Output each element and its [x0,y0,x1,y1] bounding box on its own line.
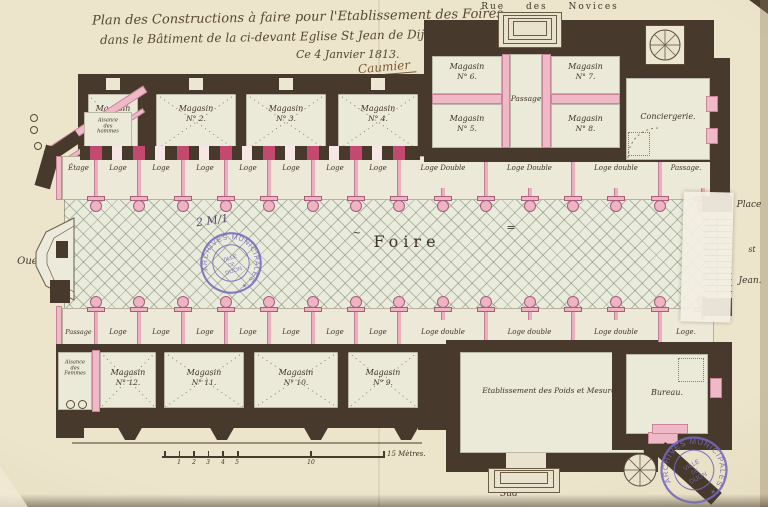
scale-tick-label: 4 [218,459,228,466]
loge-label: Loge [314,328,356,336]
latrine-seat [66,400,75,409]
scale-tick-label: 1 [174,459,184,466]
magasin-7-label: MagasinN° 7. [551,62,620,82]
new-wall [432,94,502,104]
scale-tick [179,451,181,458]
scale-tick [208,451,210,458]
loge-label: Loge [270,164,312,172]
scale-tick [222,451,224,458]
spiral-stair-icon [648,28,682,62]
fold-corner [0,466,28,507]
door-jamb [220,146,232,160]
ledge-line [72,442,422,444]
loge-label: Loge [357,328,399,336]
step [513,21,547,36]
bottom-row-first-label: Passage [62,328,95,336]
scale-end-label: 15 Mètres. [387,450,437,458]
door-jamb [307,146,319,160]
paper-patch [680,191,733,322]
aisance-femmes-label: AisancedesFemmes [61,360,90,377]
door-opening [199,146,209,160]
svg-text:DIJON: DIJON [225,266,243,277]
door [706,128,718,144]
loge-label: Loge [357,164,399,172]
loge-label: Loge [270,328,312,336]
wall-segment [56,426,84,438]
foire-hall [64,196,718,314]
door-gap [189,78,203,90]
door-gap [371,78,385,90]
door-gap [106,78,120,90]
latrine-seat [30,114,38,122]
place-st-jean-line1: Place [731,200,767,210]
street-label-north: Rue des Novices [455,2,645,12]
loge-label: Loge [184,164,226,172]
buttress [303,426,329,440]
door-opening [112,146,122,160]
door-opening [372,146,382,160]
magasin-5-label: MagasinN° 5. [432,114,502,134]
door-opening [329,146,339,160]
door-opening [285,146,295,160]
magasin-10-label: MagasinN° 10. [254,368,338,388]
door-opening [155,146,165,160]
scale-tick [310,451,312,458]
magasin-8-label: MagasinN° 8. [551,114,620,134]
door [706,96,718,112]
loge-double-label: Loge double [574,328,658,336]
magasin-6-label: MagasinN° 6. [432,62,502,82]
loge-label: Loge [140,328,182,336]
door-gap [279,78,293,90]
loge-double-label: Loge double [574,164,658,172]
bottom-edge-shadow [0,494,768,507]
new-wall [92,350,100,412]
plan-title-line2: dans le Bâtiment de la ci-devant Eglise … [100,27,443,47]
loge-label: Loge [227,164,269,172]
scale-bar-line [162,456,384,458]
top-loge-row [62,156,714,200]
loge-label: Loge [97,328,139,336]
place-st-jean-line2: st [742,245,762,254]
magasin-9-label: MagasinN° 9. [348,368,418,388]
scale-tick-label: 5 [232,459,242,466]
transept-passage-label: Passage [498,94,554,103]
scale-tick [193,451,195,458]
bottom-row-last-label: Loge. [660,328,712,336]
aisance-hommes-label: Aisancedeshommes [89,118,126,135]
loge-label: Loge [314,164,356,172]
door-jamb [350,146,362,160]
buttress [117,426,143,440]
magasin-11-label: MagasinN° 11. [164,368,244,388]
magasin-2-label: MagasinN° 2. [156,104,236,124]
magasin-3-label: MagasinN° 3. [246,104,326,124]
place-st-jean-line3: Jean. [732,276,768,286]
top-row-first-label: Étage [62,164,95,172]
foire-label: Foire [362,232,452,251]
scale-tick [237,451,239,458]
svg-text:VILLE: VILLE [221,254,238,265]
buttress [209,426,235,440]
top-row-last-label: Passage. [660,164,712,172]
magasin-12-label: MagasinN° 12. [100,368,156,388]
loge-label: Loge [140,164,182,172]
loge-double-label: Loge Double [400,164,486,172]
foire-squiggle-mark: ~ [350,228,364,239]
foire-equals-mark: = [504,221,518,234]
door [652,424,688,434]
scale-tick [164,451,166,458]
new-wall [551,94,620,104]
magasin-4-label: MagasinN° 4. [338,104,418,124]
door [710,378,722,398]
door-jamb [263,146,275,160]
door-opening [242,146,252,160]
scale-tick-label: 3 [203,459,213,466]
wall-segment [50,280,70,303]
loge-double-label: Loge double [400,328,486,336]
latrine-seat [78,400,87,409]
door-jamb [177,146,189,160]
door-jamb [393,146,405,160]
step [500,472,548,484]
dotted-detail [628,132,650,156]
conciergerie-label: Conciergerie. [626,112,710,121]
scale-tick [383,451,385,458]
loge-label: Loge [184,328,226,336]
latrine-seat [30,126,38,134]
wall-segment [56,241,68,258]
loge-label: Loge [227,328,269,336]
loge-label: Loge [97,164,139,172]
door-jamb [90,146,102,160]
scanned-floor-plan: Plan des Constructions à faire pour l'Et… [0,0,768,507]
loge-double-label: Loge double [487,328,572,336]
bureau-label: Bureau. [626,388,708,397]
latrine-seat [34,142,42,150]
door-jamb [133,146,145,160]
buttress [393,426,419,440]
scale-tick-label: 2 [189,459,199,466]
loge-double-label: Loge Double [487,164,572,172]
scale-tick-label: 10 [305,459,317,466]
dotted-detail [678,358,704,382]
